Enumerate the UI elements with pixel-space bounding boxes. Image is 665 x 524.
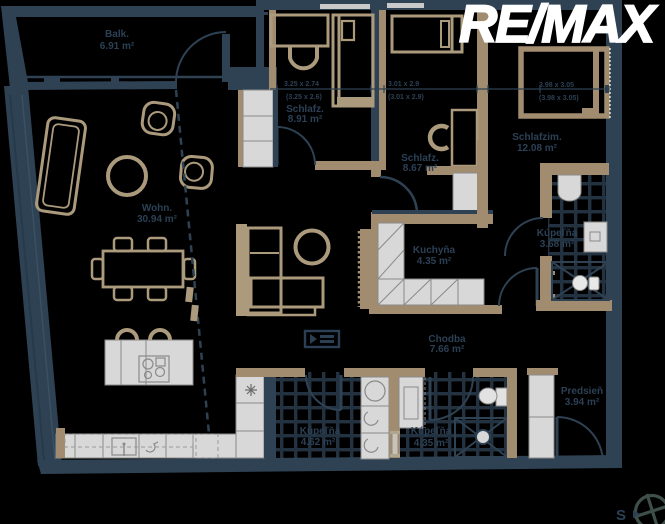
svg-text:8.91 m²: 8.91 m² xyxy=(288,114,323,125)
svg-text:Schlafzim.: Schlafzim. xyxy=(512,132,562,143)
svg-text:8.67 m²: 8.67 m² xyxy=(403,163,438,174)
svg-text:4.35 m²: 4.35 m² xyxy=(417,256,452,267)
svg-text:Kuchyňa: Kuchyňa xyxy=(413,245,456,256)
svg-text:(3.01 x 2.9): (3.01 x 2.9) xyxy=(388,94,424,101)
svg-text:RE/MAX: RE/MAX xyxy=(459,0,658,54)
svg-text:4.62 m²: 4.62 m² xyxy=(301,437,336,448)
svg-text:Balk.: Balk. xyxy=(105,29,129,40)
svg-text:Predsieň: Predsieň xyxy=(561,386,603,397)
svg-text:Kúpeľňa: Kúpeľňa xyxy=(300,426,341,437)
svg-text:30.94 m²: 30.94 m² xyxy=(137,214,178,225)
svg-text:S: S xyxy=(616,507,626,524)
svg-text:Wohn.: Wohn. xyxy=(142,203,173,214)
svg-text:12.08 m²: 12.08 m² xyxy=(517,143,558,154)
svg-text:7.66 m²: 7.66 m² xyxy=(430,344,465,355)
svg-text:3.01 x 2.9: 3.01 x 2.9 xyxy=(388,81,419,88)
svg-text:3.25 x 2.74: 3.25 x 2.74 xyxy=(284,81,319,88)
svg-text:(3.98 x 3.05): (3.98 x 3.05) xyxy=(539,95,579,102)
svg-text:(3.25 x 2.6): (3.25 x 2.6) xyxy=(286,94,322,101)
svg-text:Kúpeľňa: Kúpeľňa xyxy=(537,228,578,239)
svg-text:3.68 m²: 3.68 m² xyxy=(540,239,575,250)
svg-text:6.91 m²: 6.91 m² xyxy=(100,41,135,52)
svg-text:3.98 x 3.05: 3.98 x 3.05 xyxy=(539,82,574,89)
svg-text:Kúpeľňa: Kúpeľňa xyxy=(411,426,452,437)
svg-text:3.94 m²: 3.94 m² xyxy=(565,397,600,408)
svg-text:4.35 m²: 4.35 m² xyxy=(414,438,449,449)
